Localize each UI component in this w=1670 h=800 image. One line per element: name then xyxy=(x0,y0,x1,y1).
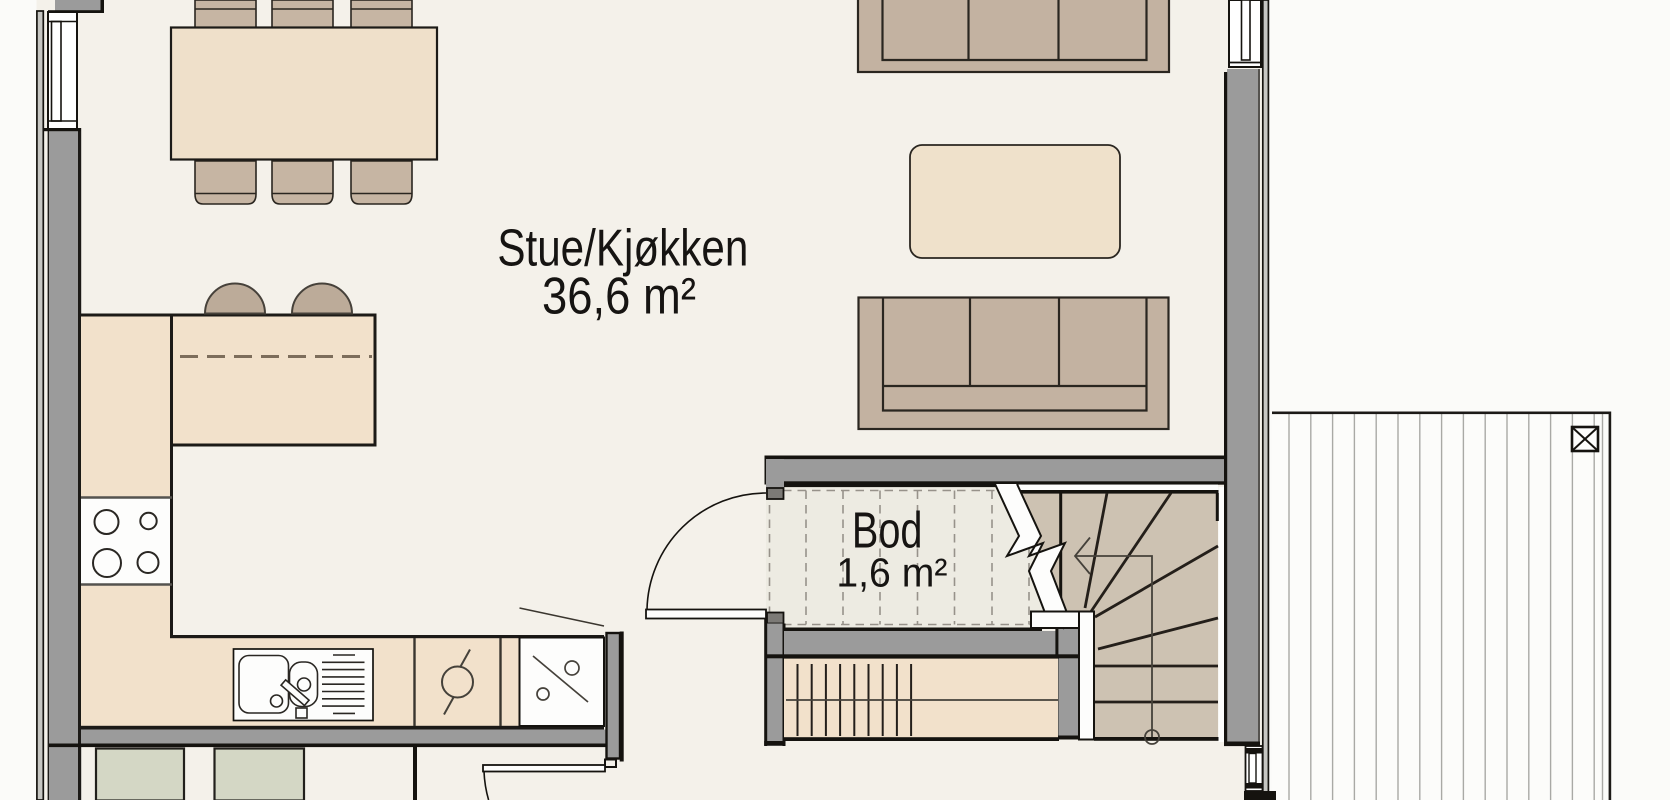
svg-text:1,6 m²: 1,6 m² xyxy=(836,551,947,596)
svg-text:36,6 m²: 36,6 m² xyxy=(542,268,696,325)
